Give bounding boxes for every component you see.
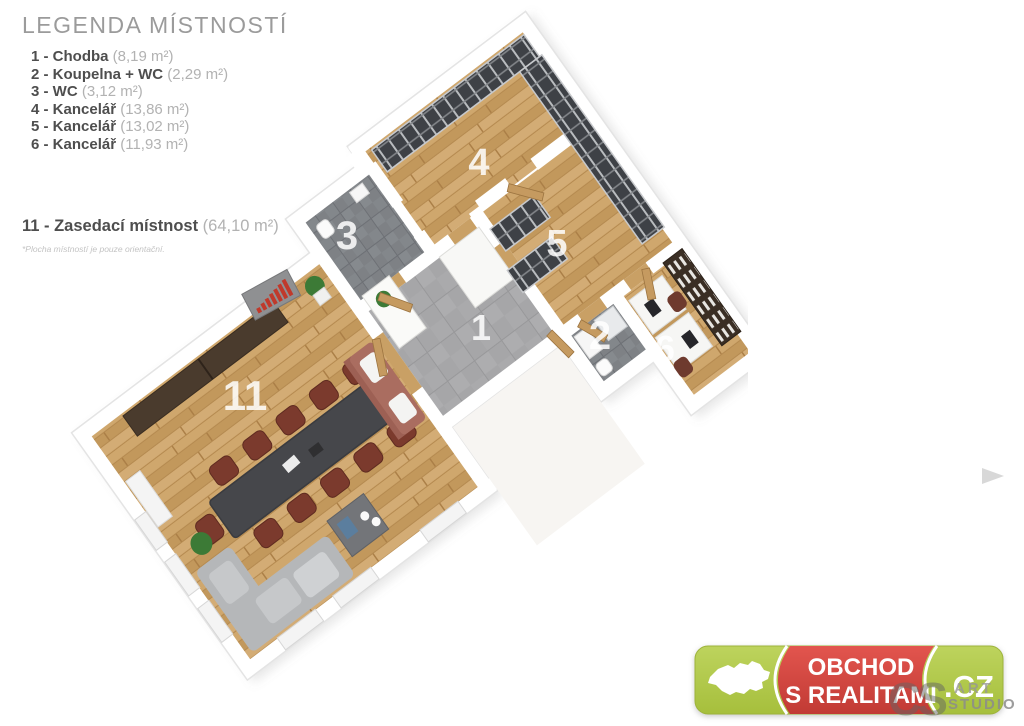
legend-item-4: 4 - Kancelář (13,86 m²) xyxy=(22,101,288,119)
legend-item-label: 11 - Zasedací místnost xyxy=(22,217,198,235)
legend-item-5: 5 - Kancelář (13,02 m²) xyxy=(22,118,288,136)
legend-item-2: 2 - Koupelna + WC (2,29 m²) xyxy=(22,66,288,84)
agency-logo: OBCHOD S REALITAMI .CZ xyxy=(694,645,1006,715)
legend-item-label: 1 - Chodba xyxy=(31,48,109,65)
legend-item-6: 6 - Kancelář (11,93 m²) xyxy=(22,136,288,154)
logo-line2: S REALITAMI xyxy=(785,682,937,709)
legend-item-11: 11 - Zasedací místnost (64,10 m²) xyxy=(22,217,288,236)
legend-footnote: *Plocha místností je pouze orientační. xyxy=(22,244,288,254)
legend-item-1: 1 - Chodba (8,19 m²) xyxy=(22,48,288,66)
white-crop-overlay xyxy=(748,96,1024,512)
legend-item-area: (64,10 m²) xyxy=(203,217,279,235)
legend-item-area: (11,93 m²) xyxy=(120,136,188,153)
legend-item-area: (13,86 m²) xyxy=(120,101,189,118)
legend-item-label: 5 - Kancelář xyxy=(31,118,116,135)
legend-item-label: 3 - WC xyxy=(31,83,78,100)
legend-item-area: (3,12 m²) xyxy=(82,83,143,100)
legend-item-label: 4 - Kancelář xyxy=(31,101,116,118)
room-label-5: 5 xyxy=(546,223,567,265)
legend-item-area: (13,02 m²) xyxy=(120,118,189,135)
room-label-11: 11 xyxy=(223,372,267,419)
room-label-4: 4 xyxy=(468,142,489,184)
legend-item-area: (2,29 m²) xyxy=(167,66,228,83)
room-label-1: 1 xyxy=(471,307,491,348)
legend-item-label: 6 - Kancelář xyxy=(31,136,116,153)
room-legend: LEGENDA MÍSTNOSTÍ 1 - Chodba (8,19 m²) 2… xyxy=(22,12,288,254)
legend-item-label: 2 - Koupelna + WC xyxy=(31,66,163,83)
legend-item-area: (8,19 m²) xyxy=(113,48,174,65)
logo-line1: OBCHOD xyxy=(808,654,915,681)
legend-title: LEGENDA MÍSTNOSTÍ xyxy=(22,12,288,39)
legend-item-3: 3 - WC (3,12 m²) xyxy=(22,83,288,101)
room-label-6: 6 xyxy=(655,328,675,369)
room-label-3: 3 xyxy=(336,214,358,258)
room-label-2: 2 xyxy=(589,314,611,358)
logo-tld: .CZ xyxy=(944,669,994,704)
